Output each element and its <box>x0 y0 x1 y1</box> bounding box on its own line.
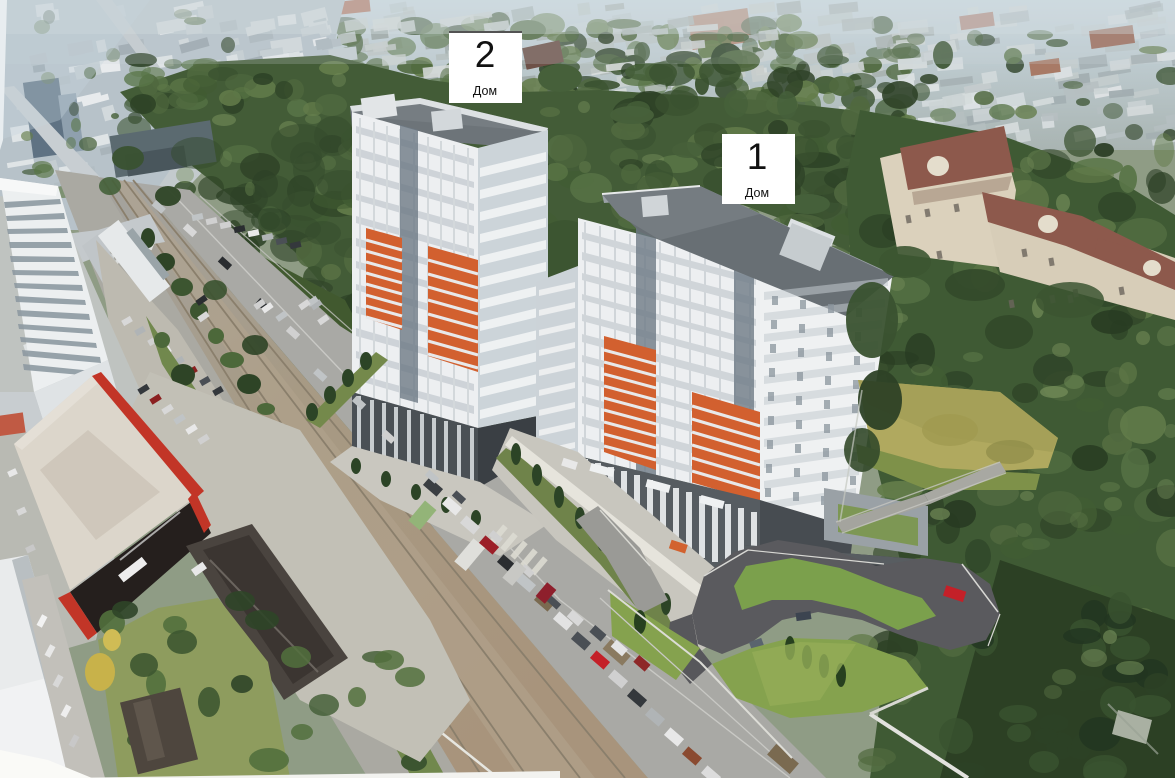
svg-text:2: 2 <box>475 34 496 75</box>
svg-text:1: 1 <box>747 136 768 177</box>
svg-text:Дом: Дом <box>473 84 497 98</box>
svg-text:Дом: Дом <box>745 186 769 200</box>
